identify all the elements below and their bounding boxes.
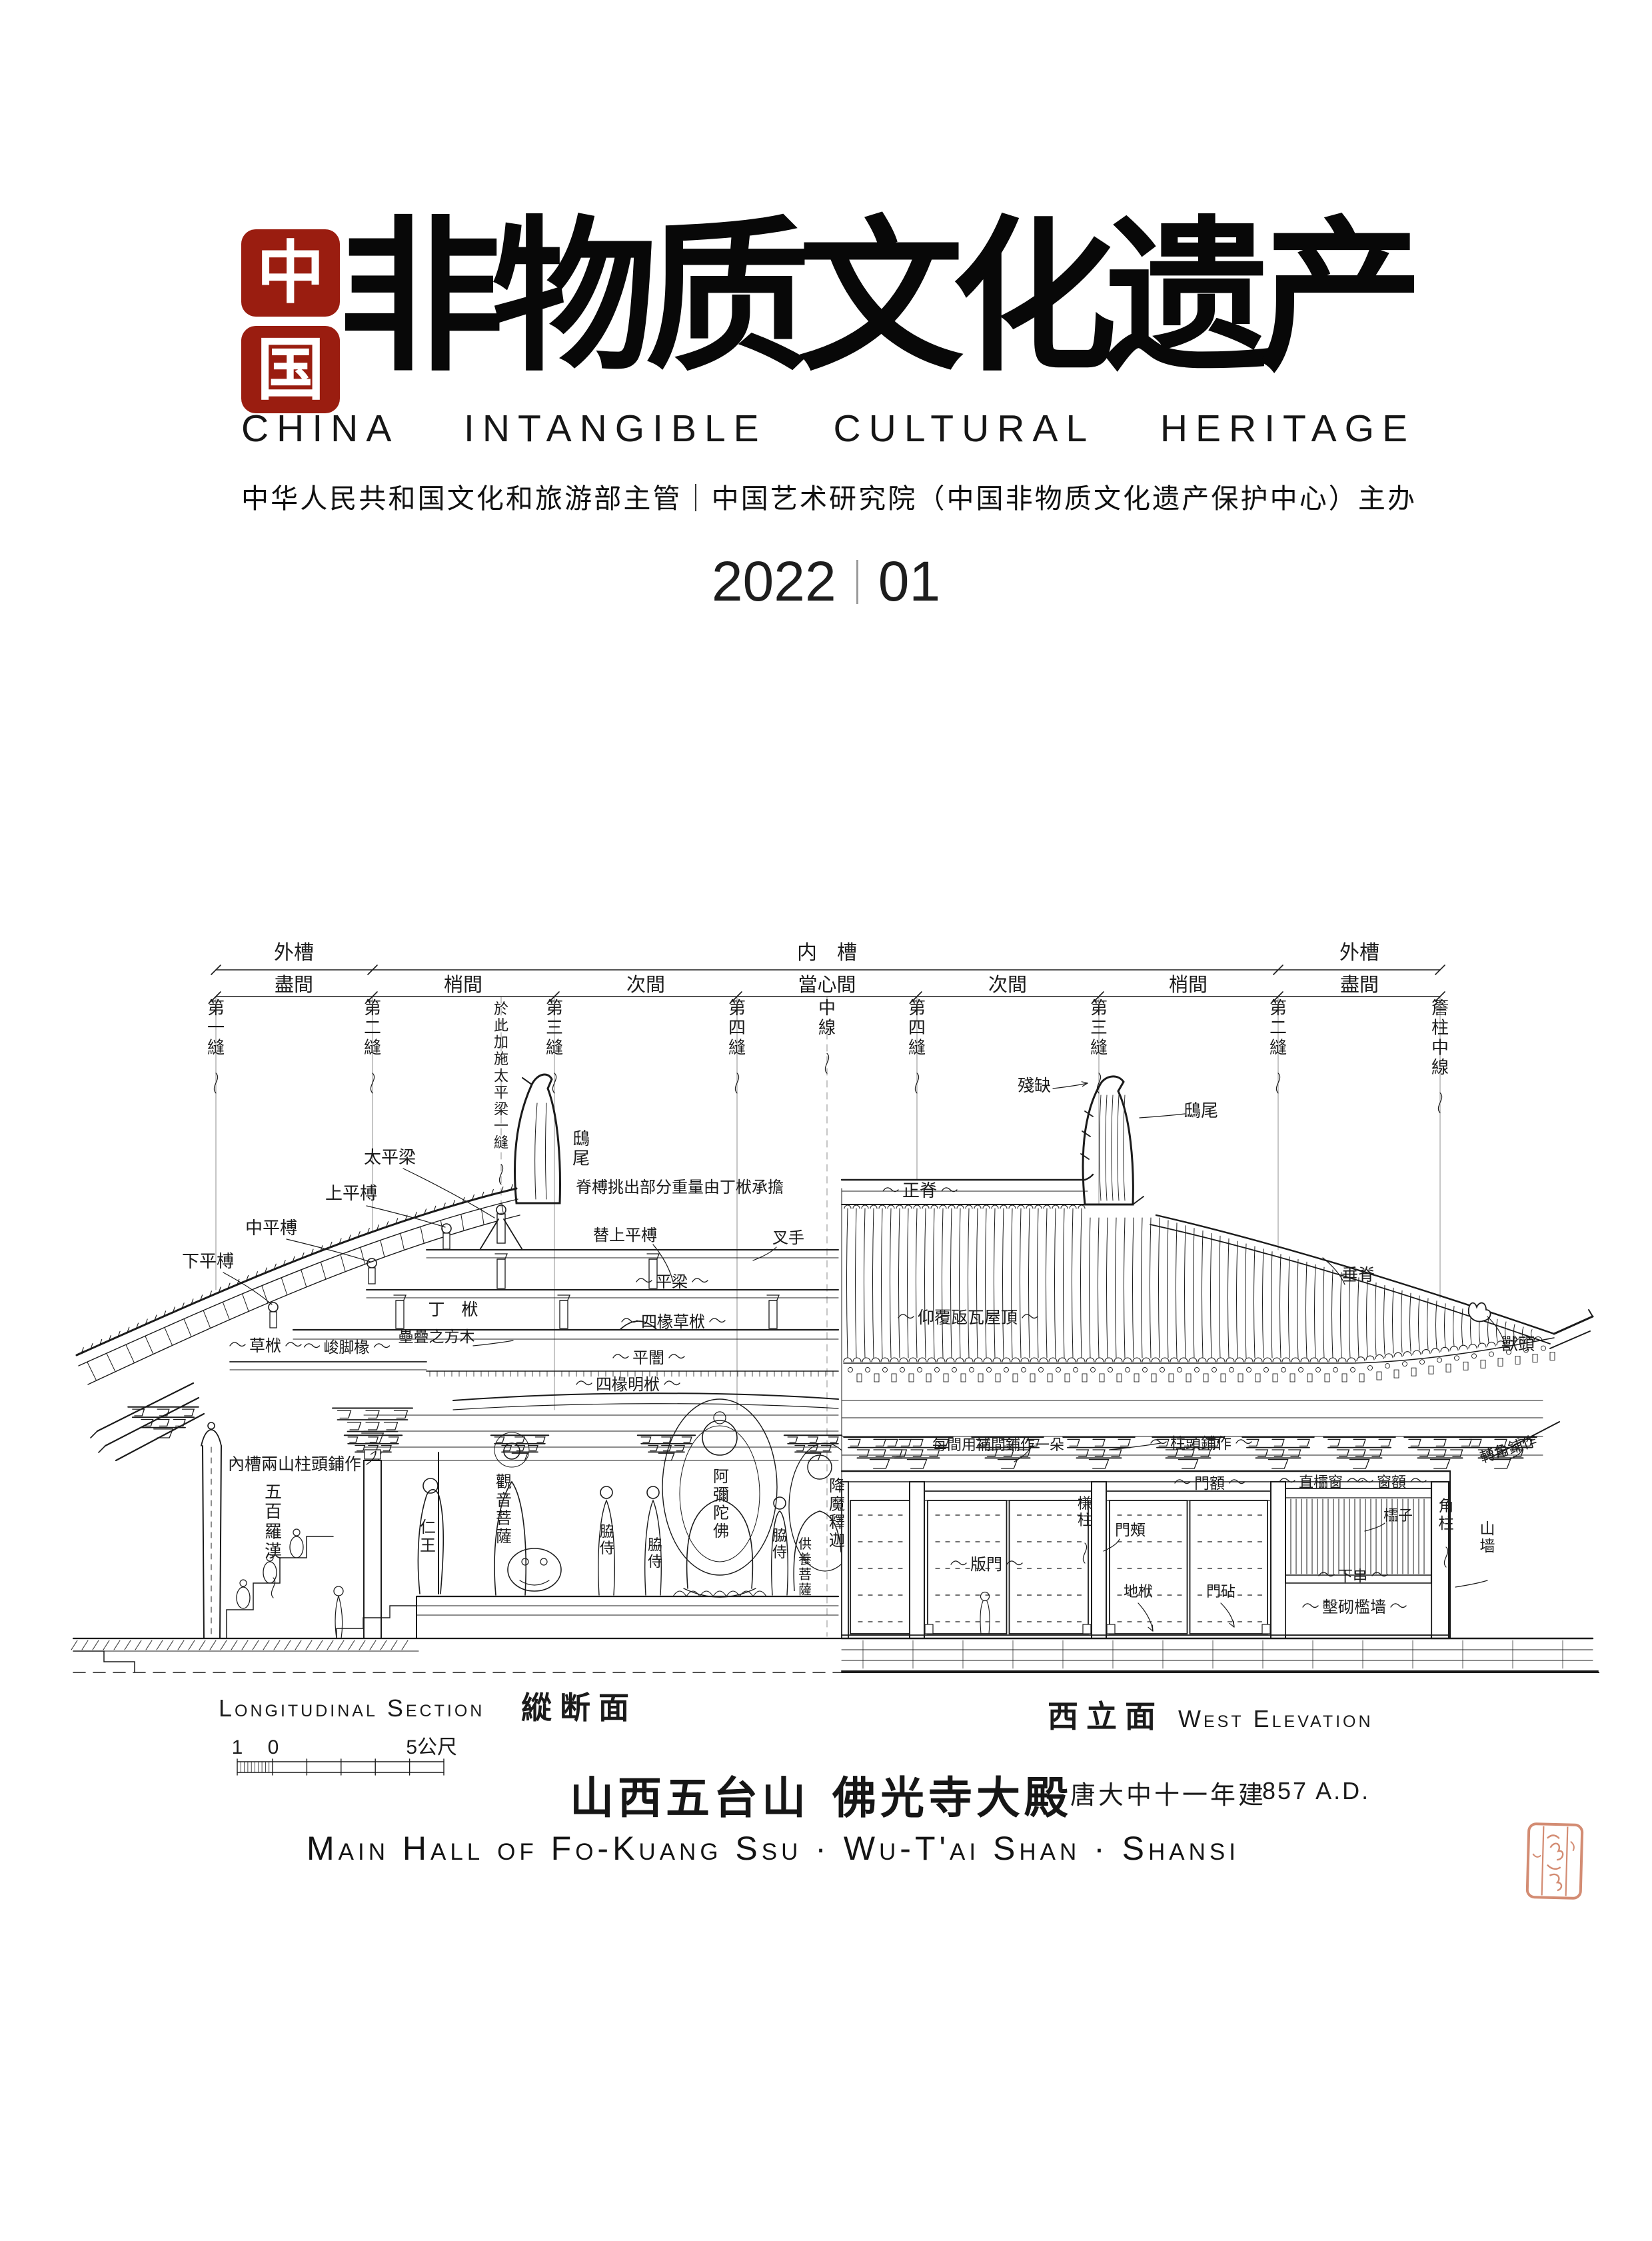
svg-text:獸頭: 獸頭	[1501, 1335, 1535, 1354]
svg-text:角柱: 角柱	[1439, 1497, 1454, 1532]
svg-text:内 槽: 内 槽	[797, 942, 857, 964]
svg-text:門額: 門額	[1194, 1474, 1225, 1492]
svg-text:觀音菩薩: 觀音菩薩	[496, 1473, 512, 1546]
architectural-drawing-svg: 外槽内 槽外槽盡間梢間次間當心間次間梢間盡間第一縫第二縫於此加施太平梁一縫第三縫…	[53, 917, 1599, 1830]
svg-text:正脊: 正脊	[902, 1180, 937, 1200]
built-date-western: 857 A.D.	[1262, 1777, 1370, 1805]
svg-text:壘疊之方木: 壘疊之方木	[399, 1328, 475, 1345]
svg-text:外槽: 外槽	[274, 942, 314, 964]
svg-text:梢間: 梢間	[444, 974, 482, 996]
svg-text:柱頭鋪作: 柱頭鋪作	[1170, 1434, 1232, 1452]
svg-text:櫺子: 櫺子	[1383, 1507, 1413, 1524]
svg-text:盡間: 盡間	[275, 974, 313, 996]
svg-text:門頰: 門頰	[1115, 1521, 1146, 1538]
magazine-title-english: CHINA INTANGIBLE CULTURAL HERITAGE	[241, 407, 1415, 451]
svg-text:脇侍: 脇侍	[772, 1527, 787, 1560]
svg-text:替上平榑: 替上平榑	[593, 1226, 657, 1244]
seal-char-bottom: 国	[241, 326, 340, 413]
scale-bar-label-1: 1	[232, 1736, 243, 1758]
svg-text:窗額: 窗額	[1377, 1474, 1406, 1490]
magazine-logo-seal: 中 国	[241, 229, 340, 423]
caption-longitudinal-section-en: Longitudinal Section	[219, 1694, 484, 1722]
svg-text:第二縫: 第二縫	[1269, 998, 1287, 1057]
svg-text:平闇: 平闇	[632, 1349, 664, 1367]
title-location-cn: 山西五台山	[570, 1773, 810, 1822]
svg-text:內槽兩山柱頭鋪作: 內槽兩山柱頭鋪作	[228, 1455, 361, 1474]
issue-line: 2022 01	[0, 549, 1652, 614]
svg-text:脊榑挑出部分重量由丁栿承擔: 脊榑挑出部分重量由丁栿承擔	[576, 1178, 784, 1196]
svg-text:供養菩薩: 供養菩薩	[798, 1536, 812, 1597]
svg-text:上平榑: 上平榑	[325, 1183, 377, 1203]
svg-text:每間用補間鋪作一朵: 每間用補間鋪作一朵	[932, 1436, 1064, 1453]
svg-text:第四縫: 第四縫	[728, 998, 746, 1057]
seal-char-top: 中	[241, 229, 340, 317]
caption-longitudinal-section-cn: 縱断面	[521, 1690, 637, 1725]
svg-text:下串: 下串	[1338, 1568, 1367, 1584]
svg-text:垂脊: 垂脊	[1341, 1266, 1375, 1284]
svg-text:次間: 次間	[626, 974, 665, 996]
svg-text:峻脚椽: 峻脚椽	[324, 1338, 370, 1356]
svg-text:太平梁: 太平梁	[364, 1147, 416, 1167]
caption-west-elevation-cn: 西立面	[1048, 1699, 1164, 1734]
svg-text:脇侍: 脇侍	[600, 1523, 614, 1556]
svg-text:第三縫: 第三縫	[1090, 998, 1108, 1057]
svg-text:平梁: 平梁	[656, 1273, 688, 1291]
svg-text:四椽草栿: 四椽草栿	[641, 1313, 705, 1331]
svg-text:脇侍: 脇侍	[648, 1536, 662, 1570]
issue-divider	[856, 560, 858, 604]
svg-text:仁王: 仁王	[420, 1518, 436, 1554]
svg-text:門砧: 門砧	[1206, 1583, 1236, 1600]
issue-number: 01	[878, 549, 940, 614]
svg-text:中線: 中線	[818, 998, 836, 1038]
scale-bar-label-5m: 5公尺	[406, 1736, 457, 1758]
svg-text:第一縫: 第一縫	[207, 998, 225, 1057]
svg-text:當心間: 當心間	[798, 974, 856, 996]
svg-text:降魔釋迦: 降魔釋迦	[829, 1477, 845, 1550]
svg-text:地栿: 地栿	[1124, 1583, 1153, 1600]
svg-text:槏柱: 槏柱	[1078, 1495, 1092, 1528]
svg-text:丁 栿: 丁 栿	[428, 1300, 478, 1319]
svg-text:鴟尾: 鴟尾	[1184, 1101, 1218, 1120]
svg-text:四椽明栿: 四椽明栿	[596, 1376, 660, 1394]
svg-text:墼砌檻墙: 墼砌檻墙	[1322, 1598, 1386, 1616]
svg-text:第三縫: 第三縫	[546, 998, 563, 1057]
svg-text:直櫺窗: 直櫺窗	[1299, 1474, 1343, 1490]
built-date-chinese: 唐大中十一年建	[1070, 1774, 1266, 1811]
foguang-temple-drawing: 外槽内 槽外槽盡間梢間次間當心間次間梢間盡間第一縫第二縫於此加施太平梁一縫第三縫…	[53, 917, 1599, 1830]
svg-text:盡間: 盡間	[1340, 974, 1379, 996]
svg-text:中平榑: 中平榑	[245, 1218, 297, 1238]
drawing-title-chinese: 山西五台山佛光寺大殿	[570, 1762, 1072, 1826]
svg-text:山墙: 山墙	[1480, 1520, 1495, 1554]
svg-text:草栿: 草栿	[249, 1337, 281, 1355]
title-hall-cn: 佛光寺大殿	[832, 1773, 1072, 1822]
caption-west-elevation-en: West Elevation	[1178, 1705, 1373, 1732]
svg-text:次間: 次間	[988, 974, 1027, 996]
svg-text:下平榑: 下平榑	[182, 1251, 234, 1271]
drawing-linework: 外槽内 槽外槽盡間梢間次間當心間次間梢間盡間第一縫第二縫於此加施太平梁一縫第三縫…	[71, 942, 1599, 1775]
magazine-title-chinese: 非物质文化遗产	[339, 211, 1438, 384]
svg-text:殘缺: 殘缺	[1018, 1077, 1051, 1095]
drawing-title-english: Main Hall of Fo-Kuang Ssu · Wu-T'ai Shan…	[307, 1829, 1239, 1868]
issue-year: 2022	[712, 549, 836, 614]
svg-text:梢間: 梢間	[1169, 974, 1208, 996]
svg-text:阿彌陀佛: 阿彌陀佛	[713, 1468, 729, 1540]
svg-text:叉手: 叉手	[772, 1229, 804, 1247]
svg-text:簷柱中線: 簷柱中線	[1431, 998, 1449, 1077]
svg-text:仰覆瓪瓦屋頂: 仰覆瓪瓦屋頂	[918, 1308, 1018, 1327]
red-seal-stamp	[1525, 1821, 1585, 1901]
svg-text:於此加施太平梁一縫: 於此加施太平梁一縫	[494, 1001, 508, 1151]
supervisor-organizer-line: 中华人民共和国文化和旅游部主管｜中国艺术研究院（中国非物质文化遗产保护中心）主办	[241, 476, 1415, 516]
scale-bar-label-0: 0	[268, 1736, 279, 1758]
svg-text:五百羅漢: 五百羅漢	[265, 1482, 282, 1561]
svg-text:外槽: 外槽	[1339, 942, 1379, 964]
svg-text:第二縫: 第二縫	[364, 998, 381, 1057]
svg-text:第四縫: 第四縫	[908, 998, 926, 1057]
svg-text:鴟尾: 鴟尾	[572, 1128, 590, 1168]
svg-text:版門: 版門	[970, 1556, 1002, 1574]
